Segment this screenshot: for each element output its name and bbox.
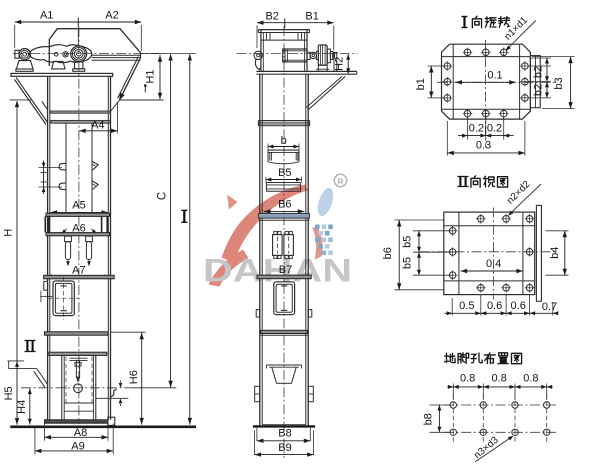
svg-text:b6: b6 [382,247,394,259]
svg-text:b5: b5 [402,257,414,269]
svg-text:0.2: 0.2 [487,122,502,134]
svg-text:A7: A7 [72,264,85,276]
svg-text:A5: A5 [72,200,85,212]
svg-text:A1: A1 [40,10,53,22]
svg-text:0.8: 0.8 [491,372,506,384]
svg-text:0.2: 0.2 [469,122,484,134]
svg-text:0.6: 0.6 [487,300,502,312]
svg-text:H: H [3,229,15,237]
svg-text:B8: B8 [278,428,291,440]
svg-text:B9: B9 [278,442,291,454]
svg-text:H2: H2 [333,57,345,71]
svg-text:B2: B2 [265,10,278,22]
svg-text:H6: H6 [128,370,140,384]
svg-text:H5: H5 [3,386,15,400]
svg-text:0.8: 0.8 [460,372,475,384]
svg-text:b2: b2 [532,66,544,78]
svg-text:0.5: 0.5 [459,300,474,312]
svg-text:b8: b8 [423,413,435,425]
svg-text:b2: b2 [532,84,544,96]
svg-text:0.1: 0.1 [487,70,502,82]
svg-text:H4: H4 [16,400,28,414]
svg-text:0.6: 0.6 [511,300,526,312]
svg-text:B7: B7 [279,264,292,276]
svg-text:B5: B5 [278,167,291,179]
svg-text:B6: B6 [278,198,291,210]
svg-text:C: C [157,192,169,200]
svg-text:A9: A9 [71,440,84,452]
svg-text:H1: H1 [145,69,157,83]
svg-text:0.4: 0.4 [486,258,501,270]
svg-text:b1: b1 [415,78,427,90]
svg-text:A2: A2 [105,10,118,22]
svg-text:b4: b4 [549,247,561,259]
svg-text:0.7: 0.7 [542,301,557,313]
svg-text:A4: A4 [91,119,104,131]
svg-text:b: b [281,135,287,147]
svg-text:0.3: 0.3 [476,140,491,152]
svg-text:B1: B1 [305,10,318,22]
svg-text:b3: b3 [553,77,565,89]
svg-text:b5: b5 [402,236,414,248]
svg-text:0.8: 0.8 [523,372,538,384]
svg-text:A8: A8 [74,427,87,439]
svg-text:R: R [337,176,343,186]
